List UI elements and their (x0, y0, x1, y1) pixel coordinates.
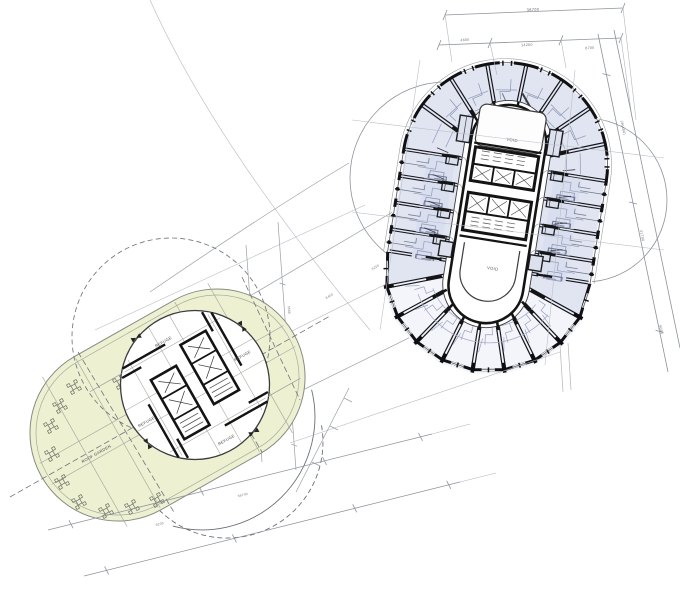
svg-text:36700: 36700 (527, 7, 540, 13)
svg-text:8700: 8700 (585, 46, 594, 50)
svg-text:4600: 4600 (460, 38, 469, 42)
svg-text:3500: 3500 (287, 306, 292, 315)
svg-text:14200: 14200 (521, 43, 533, 47)
